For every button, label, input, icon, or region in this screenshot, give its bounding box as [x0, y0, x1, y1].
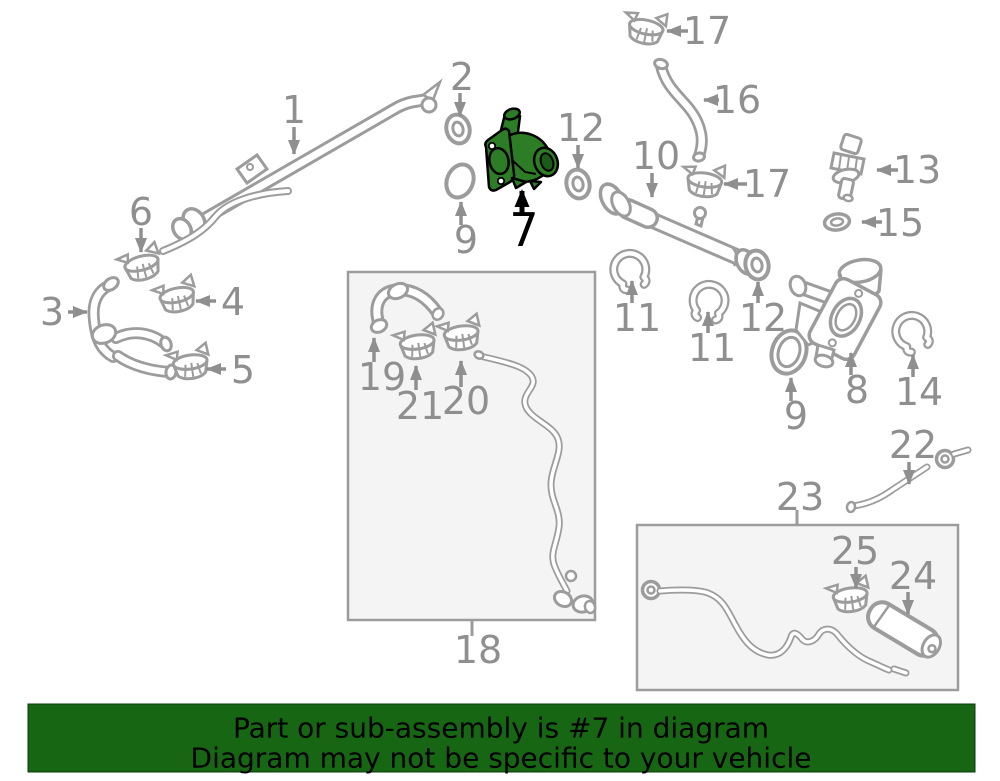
- part-11-clip-left: [610, 249, 651, 292]
- part-17-clamp-top: [620, 6, 668, 48]
- part-12-oring-top: [564, 167, 593, 200]
- part-9-gasket-left: [442, 160, 479, 201]
- callout-24: 24: [889, 554, 937, 598]
- subassembly-box-23: [637, 525, 958, 690]
- banner-line-2: Diagram may not be specific to your vehi…: [191, 742, 812, 775]
- callout-14: 14: [895, 370, 943, 414]
- banner-line-1: Part or sub-assembly is #7 in diagram: [233, 712, 769, 745]
- callout-6: 6: [129, 190, 153, 234]
- part-17-clamp-mid: [680, 160, 726, 199]
- callout-20: 20: [442, 379, 490, 423]
- callout-4: 4: [221, 280, 245, 324]
- callout-21: 21: [396, 384, 444, 428]
- callout-12-top: 12: [557, 106, 605, 150]
- part-4-clamp: [151, 275, 199, 317]
- callout-17-top: 17: [683, 9, 731, 53]
- callout-7-highlighted: 7: [509, 203, 538, 257]
- part-14-clip: [890, 310, 934, 355]
- callout-2: 2: [450, 55, 474, 99]
- callout-10: 10: [632, 134, 680, 178]
- callout-5: 5: [231, 348, 255, 392]
- part-15-seal: [824, 212, 851, 231]
- callout-18: 18: [454, 628, 502, 672]
- callout-23: 23: [776, 475, 824, 519]
- callout-17-mid: 17: [743, 162, 791, 206]
- diagram-canvas: 1 2 3 4 5 6 7 8 9 9 10 11 11 12 12 13 14…: [0, 0, 1000, 781]
- callout-9-right: 9: [784, 394, 808, 438]
- callout-11-right: 11: [688, 326, 736, 370]
- callout-8: 8: [845, 368, 869, 412]
- callout-3: 3: [40, 290, 64, 334]
- callout-22: 22: [889, 423, 937, 467]
- part-12-oring-right: [743, 248, 772, 281]
- part-10-tube: [596, 180, 760, 278]
- callout-25: 25: [831, 529, 879, 573]
- callout-1: 1: [282, 88, 306, 132]
- callout-11-left: 11: [613, 296, 661, 340]
- callout-15: 15: [876, 201, 924, 245]
- callout-13: 13: [893, 148, 941, 192]
- part-13-sensor: [831, 134, 864, 202]
- callout-9-left: 9: [454, 218, 478, 262]
- part-2-oring: [443, 112, 473, 146]
- callout-16: 16: [713, 78, 761, 122]
- parts-diagram: 1 2 3 4 5 6 7 8 9 9 10 11 11 12 12 13 14…: [0, 0, 1000, 781]
- banner: Part or sub-assembly is #7 in diagram Di…: [28, 704, 975, 775]
- part-7-highlighted: [485, 107, 561, 191]
- callout-12-right: 12: [739, 296, 787, 340]
